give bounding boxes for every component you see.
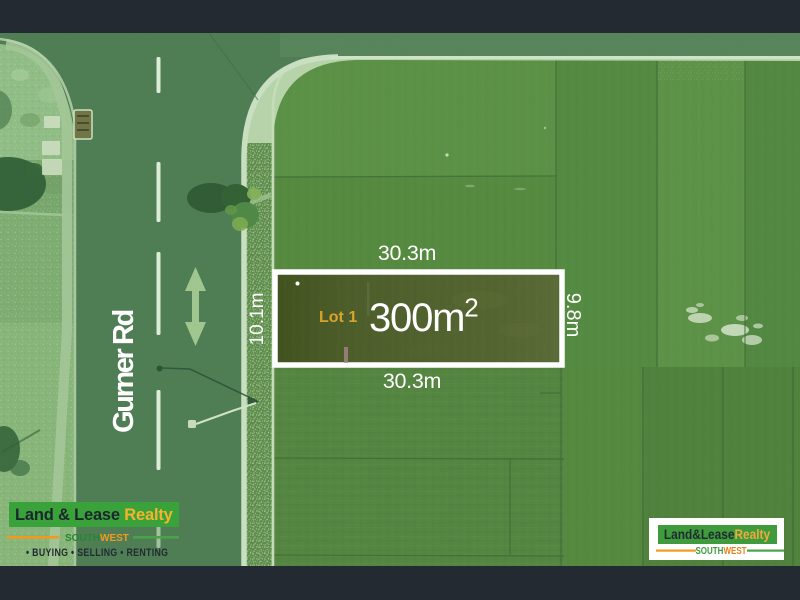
svg-text:SOUTHWEST: SOUTHWEST [695, 545, 746, 556]
svg-text:SOUTHWEST: SOUTHWEST [65, 533, 129, 544]
svg-text:• BUYING • SELLING • RENTING: • BUYING • SELLING • RENTING [26, 547, 168, 559]
svg-text:Land&LeaseRealty: Land&LeaseRealty [664, 526, 770, 542]
svg-text:Land & Lease Realty: Land & Lease Realty [15, 506, 174, 524]
